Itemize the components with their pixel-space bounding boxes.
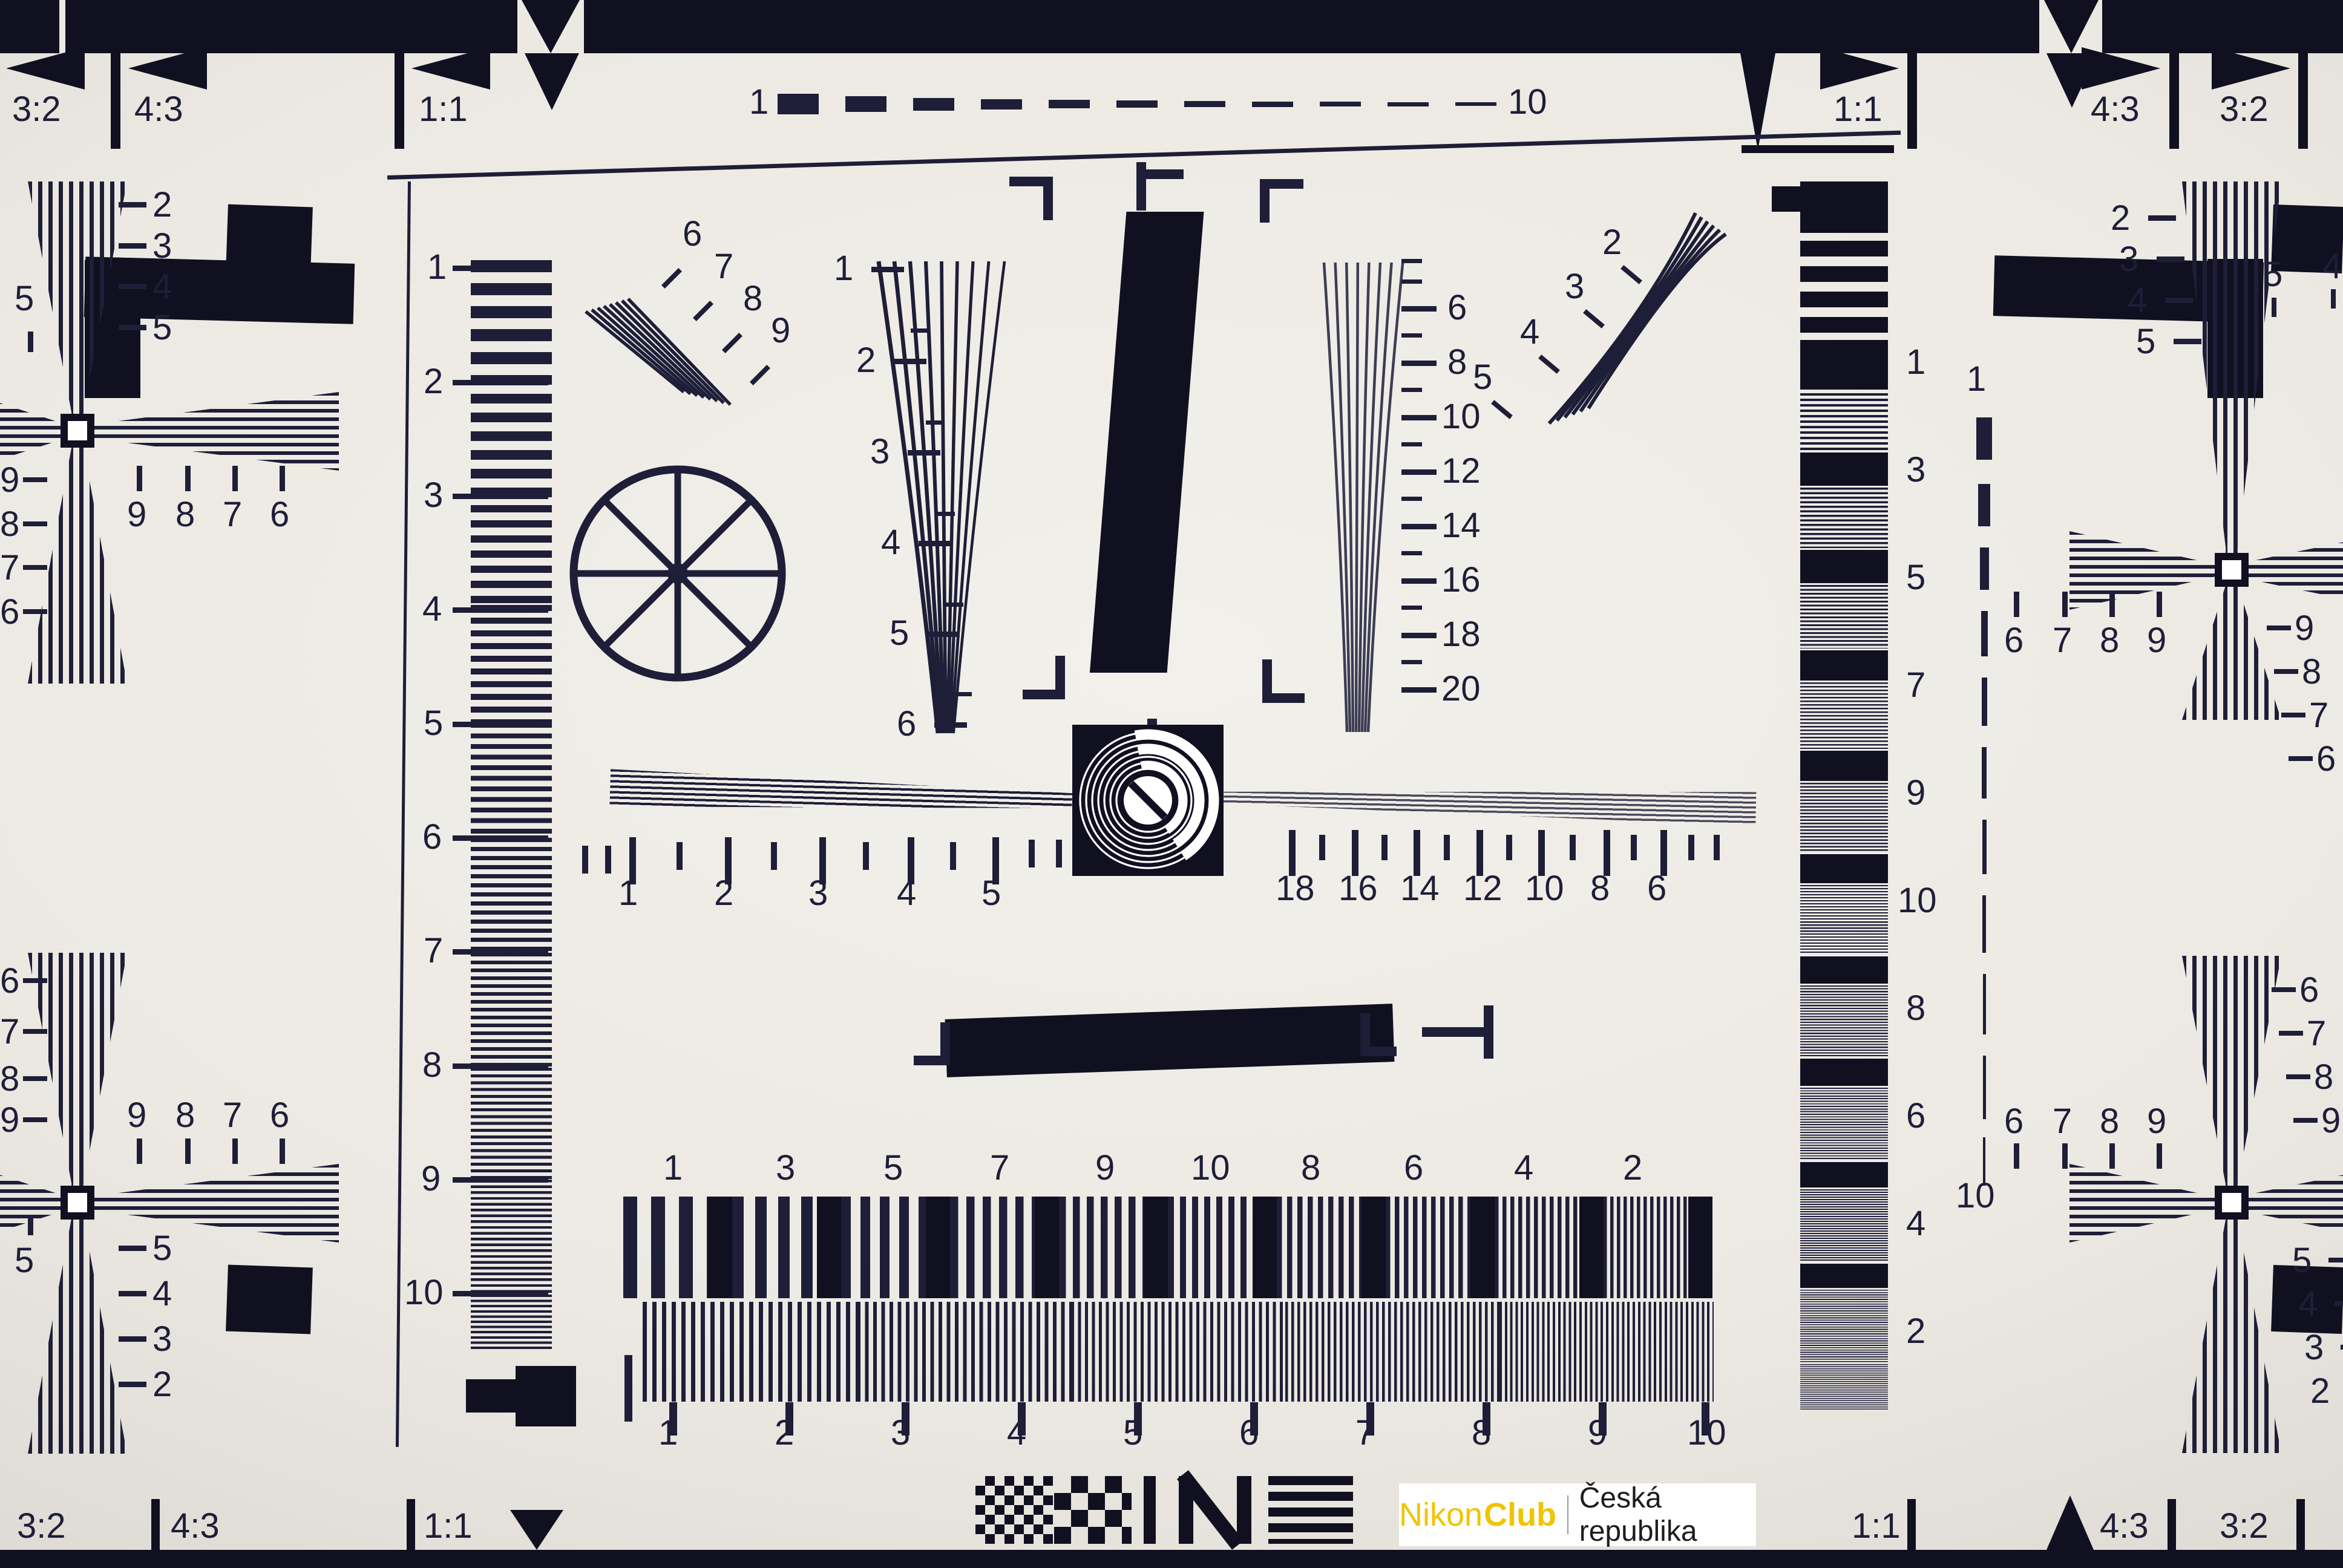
right-col-stripes-0 — [1800, 393, 1888, 451]
top-scale-dash-9 — [1388, 102, 1429, 106]
crt-v-dash-3 — [2174, 339, 2201, 344]
bottom-row2-stripes-4 — [1499, 1302, 1714, 1402]
right-col-stripes-4 — [1800, 783, 1888, 852]
right-wedge-minor-1 — [1401, 279, 1422, 284]
h-left-minor-3 — [771, 842, 777, 870]
label-cross_left_bottom-v_labels-1: 4 — [152, 1276, 172, 1312]
label-left_ruler-labels-7: 8 — [422, 1048, 442, 1083]
clb-edge-dash-0 — [23, 978, 47, 983]
label-bottom_bars-bottom_labels-5: 6 — [1239, 1416, 1259, 1451]
label-cross_right_top-h_labels-2: 8 — [2100, 623, 2119, 658]
left-ruler-tick-5 — [453, 835, 548, 841]
top-scale-dash-5 — [1116, 100, 1158, 108]
bottom-row1-stripes-0 — [623, 1197, 708, 1298]
clb-v-dash-2 — [119, 1336, 146, 1342]
center-wedge-minor-2 — [937, 512, 955, 516]
label-bottom_bars-top_labels-4: 9 — [1095, 1151, 1115, 1186]
right-col-solid-5 — [1800, 452, 1888, 486]
label-center_wedge-labels-2: 3 — [870, 434, 890, 469]
label-cross_left_bottom-h_labels-1: 8 — [175, 1098, 195, 1133]
label-bottom_bars-top_labels-1: 3 — [776, 1151, 795, 1186]
label-left_ruler-labels-9: 10 — [404, 1275, 444, 1310]
label-cross_left_bottom-h_labels-0: 9 — [127, 1098, 146, 1133]
h-right-minor-5 — [1631, 835, 1637, 860]
right-wedge-major-7 — [1401, 687, 1437, 693]
h-right-major-6 — [1660, 830, 1667, 876]
bottom-row2-stripes-2 — [1071, 1302, 1285, 1402]
label-cross_right_top-h_labels-1: 7 — [2053, 623, 2072, 658]
crb-side-dash-3 — [2293, 1118, 2318, 1123]
clt-edge-dash-0 — [23, 477, 47, 482]
bottom-row1-stripes-5 — [1168, 1197, 1253, 1298]
label-right_wedge-labels-2: 10 — [1441, 399, 1481, 434]
label-cross_left_bottom-edge_col-3: 9 — [0, 1103, 19, 1138]
top-scale-dash-6 — [1184, 101, 1225, 107]
h-right-major-4 — [1538, 830, 1545, 876]
label-cross_left_bottom-v_labels-3: 2 — [152, 1367, 172, 1402]
left-ruler-bars-3 — [471, 605, 552, 723]
bottom-row2-stripes-3 — [1285, 1302, 1499, 1402]
right-wedge-minor-8 — [1401, 660, 1422, 664]
dash-column-dash-6 — [1982, 820, 1987, 874]
label-cross_right_top-v_labels-2: 4 — [2128, 283, 2147, 318]
clt-h-tick-1 — [185, 466, 191, 491]
h-right-minor-0 — [1319, 835, 1325, 860]
label-center_wedge-labels-1: 2 — [856, 343, 876, 378]
right-col-stripes-6 — [1800, 985, 1888, 1057]
clt-v-dash-2 — [119, 284, 146, 289]
right-col-solid-12 — [1800, 1162, 1888, 1187]
label-cross_left_top-edge_col-0: 9 — [0, 463, 19, 498]
label-cross_right_bottom-side_col-1: 7 — [2307, 1016, 2326, 1051]
diag-wedge-line-0 — [586, 312, 684, 392]
right-col-solid-7 — [1800, 650, 1888, 681]
label-fan_wedge-labels-1: 3 — [1565, 269, 1584, 304]
top-scale-dash-1 — [845, 96, 886, 112]
label-left_ruler-labels-5: 6 — [422, 820, 442, 855]
label-right_column-labels-7: 6 — [1906, 1099, 1925, 1134]
label-bottom_bars-top_labels-9: 2 — [1623, 1151, 1642, 1186]
bottom-row2-stripes-0 — [643, 1302, 857, 1402]
label-cross_right_top-side_col-0: 9 — [2295, 611, 2314, 646]
dash-column-dash-9 — [1983, 1056, 1986, 1119]
label-cross_right_bottom-v_labels-1: 4 — [2298, 1287, 2318, 1322]
left-ruler-tick-0 — [453, 266, 548, 271]
top-scale-dash-10 — [1455, 102, 1496, 106]
label-cross_left_bottom-edge_col-0: 6 — [0, 964, 19, 999]
clb-v-dash-3 — [119, 1382, 146, 1387]
dash-column-dash-2 — [1980, 547, 1989, 590]
label-cross_right_bottom-side_col-0: 6 — [2299, 973, 2319, 1008]
right-col-solid-0 — [1800, 241, 1888, 256]
label-diag_wedge-labels-2: 8 — [743, 281, 762, 316]
h-right-major-3 — [1476, 830, 1483, 876]
label-bottom_bars-bottom_labels-3: 4 — [1007, 1416, 1026, 1451]
label-cross_left_top-v_labels-0: 2 — [152, 188, 172, 223]
label-right_column-labels-1: 3 — [1906, 452, 1925, 488]
label-h_scale_right-labels-2: 14 — [1400, 871, 1440, 906]
right-wedge-minor-6 — [1401, 551, 1422, 555]
label-bottom_bars-top_labels-6: 8 — [1301, 1151, 1320, 1186]
label-cross_right_bottom-h_labels-3: 9 — [2147, 1104, 2166, 1139]
right-col-solid-10 — [1800, 956, 1888, 984]
label-cross_left_top-h_labels-2: 7 — [223, 497, 242, 532]
label-center_wedge-labels-4: 5 — [890, 616, 909, 651]
bottom-row2-stripes-1 — [857, 1302, 1071, 1402]
label-cross_right_bottom-h_labels-2: 8 — [2100, 1104, 2119, 1139]
label-bottom_bars-top_labels-5: 10 — [1191, 1151, 1230, 1186]
crt-pair-tick-0 — [2272, 298, 2276, 317]
crt-h-tick-1 — [2062, 592, 2068, 617]
center-wedge-major-3 — [919, 541, 951, 546]
h-right-minor-1 — [1381, 835, 1388, 860]
crt-side-dash-2 — [2281, 713, 2305, 717]
label-cross_left_bottom-h_labels-2: 7 — [223, 1098, 242, 1133]
bottom-row1-sep-8 — [1579, 1197, 1604, 1298]
bottom-row1-sep-6 — [1362, 1197, 1386, 1298]
label-left_ruler-labels-8: 9 — [421, 1161, 441, 1197]
label-right_wedge-labels-6: 18 — [1441, 617, 1481, 652]
right-col-solid-9 — [1800, 854, 1888, 883]
center-wedge-minor-0 — [911, 328, 929, 333]
clb-h-tick-1 — [185, 1138, 191, 1164]
right-wedge-minor-7 — [1401, 606, 1422, 610]
right-wedge-minor-0 — [1401, 259, 1422, 263]
clt-h-tick-0 — [137, 466, 142, 491]
h-right-minor-6 — [1688, 835, 1694, 860]
h-left-minor-0 — [582, 846, 588, 874]
label-bottom_bars-bottom_labels-7: 8 — [1472, 1416, 1491, 1451]
crt-side-dash-0 — [2267, 626, 2291, 630]
label-cross_left_bottom-v_labels-0: 5 — [152, 1231, 172, 1266]
label-left_ruler-labels-6: 7 — [424, 933, 443, 969]
label-cross_left_top-h_labels-0: 9 — [127, 497, 146, 532]
h-right-minor-4 — [1570, 835, 1576, 860]
center-wedge-major-5 — [934, 722, 967, 728]
left-ruler-tick-3 — [453, 607, 548, 613]
right-col-stripes-9 — [1800, 1290, 1888, 1362]
right-wedge-major-1 — [1401, 361, 1437, 366]
h-left-minor-1 — [605, 846, 611, 874]
label-cross_right_top-edge_pair-1: 4 — [2322, 249, 2342, 284]
left-ruler-bars-4 — [471, 723, 552, 838]
label-cross_left_top-edge_label: 5 — [15, 281, 34, 316]
dash-column-dash-4 — [1982, 678, 1987, 726]
clt-edge-dash-1 — [23, 521, 47, 526]
bottom-row1-stripes-8 — [1495, 1197, 1579, 1298]
right-wedge-major-3 — [1401, 469, 1437, 475]
top-scale-dash-8 — [1320, 102, 1361, 106]
crb-h-tick-2 — [2109, 1143, 2115, 1169]
clt-edge-dash-2 — [23, 565, 47, 570]
crt-v-dash-1 — [2157, 256, 2184, 262]
center-wedge-major-0 — [871, 267, 904, 272]
crt-pair-tick-1 — [2331, 289, 2336, 309]
h-right-major-5 — [1604, 830, 1610, 876]
crt-h-tick-2 — [2109, 592, 2115, 617]
label-left_ruler-labels-3: 4 — [422, 592, 442, 627]
label-right_wedge-labels-7: 20 — [1441, 671, 1481, 707]
crb-h-tick-3 — [2157, 1143, 2162, 1169]
top-scale-dash-4 — [1049, 100, 1090, 108]
h-left-major-4 — [992, 837, 999, 884]
clt-edge5-tick — [28, 332, 33, 352]
center-wedge-major-4 — [927, 632, 960, 637]
h-right-major-0 — [1289, 830, 1296, 876]
label-left_ruler-labels-0: 1 — [427, 250, 447, 285]
label-cross_left_top-edge_col-2: 7 — [0, 550, 19, 586]
label-center_wedge-labels-5: 6 — [897, 707, 916, 742]
crt-side-dash-1 — [2274, 669, 2298, 674]
label-bottom_bars-top_labels-7: 6 — [1404, 1151, 1423, 1186]
label-cross_right_bottom-h_labels-1: 7 — [2053, 1104, 2072, 1139]
label-center_wedge-labels-3: 4 — [881, 525, 900, 560]
right-wedge-curve-3 — [1356, 263, 1358, 732]
clb-edge-dash-1 — [23, 1029, 47, 1034]
right-col-solid-1 — [1800, 266, 1888, 282]
label-cross_right_top-v_labels-3: 5 — [2136, 324, 2155, 359]
label-h_scale_right-labels-6: 6 — [1647, 871, 1666, 906]
right-wedge-minor-3 — [1401, 388, 1422, 392]
left-ruler-bars-6 — [471, 953, 552, 1068]
right-wedge-major-2 — [1401, 415, 1437, 420]
label-cross_left_top-edge_col-1: 8 — [0, 507, 19, 542]
h-left-minor-5 — [950, 842, 956, 870]
label-bottom_bars-bottom_labels-0: 1 — [658, 1416, 678, 1451]
dash-column-dash-3 — [1981, 611, 1988, 656]
clb-h-tick-3 — [280, 1138, 285, 1164]
left-ruler-bars-7 — [471, 1068, 552, 1180]
fan-wedge-curve-0 — [1549, 213, 1696, 423]
label-bottom_bars-bottom_labels-8: 9 — [1588, 1416, 1607, 1451]
bottom-row1-stripes-1 — [732, 1197, 817, 1298]
right-col-solid-3 — [1800, 317, 1888, 333]
right-col-stripes-2 — [1800, 585, 1888, 648]
label-cross_left_bottom-edge_col-2: 8 — [0, 1062, 19, 1097]
right-col-stripes-5 — [1800, 885, 1888, 955]
h-right-minor-3 — [1506, 835, 1512, 860]
clb-h-tick-0 — [137, 1138, 142, 1164]
label-cross_left_top-h_labels-1: 8 — [175, 497, 195, 532]
clt-h-tick-2 — [232, 466, 238, 491]
h-right-minor-2 — [1444, 835, 1450, 860]
label-cross_right_top-side_col-1: 8 — [2302, 655, 2321, 690]
top-scale-dash-0 — [778, 94, 819, 114]
label-cross_left_bottom-edge_label: 5 — [15, 1243, 34, 1278]
dash-column-dash-7 — [1982, 895, 1986, 953]
label-right_column-labels-6: 8 — [1906, 991, 1925, 1026]
dash-column-dash-1 — [1978, 484, 1990, 526]
bottom-row1-sep-4 — [1144, 1197, 1168, 1298]
left-ruler-bars-1 — [471, 375, 552, 490]
h-right-minor-7 — [1714, 835, 1720, 860]
right-wedge-minor-2 — [1401, 333, 1422, 338]
left-ruler-bars-9 — [471, 1295, 552, 1350]
right-wedge-major-0 — [1401, 306, 1437, 312]
clb-h-tick-2 — [232, 1138, 238, 1164]
label-right_column-labels-3: 7 — [1906, 668, 1925, 703]
right-col-solid-6 — [1800, 550, 1888, 583]
crt-v-dash-0 — [2148, 215, 2176, 221]
label-left_ruler-labels-2: 3 — [424, 478, 443, 513]
label-bottom_bars-bottom_labels-6: 7 — [1355, 1416, 1375, 1451]
label-bottom_bars-bottom_labels-2: 3 — [891, 1416, 910, 1451]
label-diag_wedge-labels-0: 6 — [683, 217, 702, 252]
crt-v-dash-2 — [2165, 298, 2193, 303]
clt-v-dash-0 — [119, 202, 146, 207]
label-dash_column-bottom: 10 — [1956, 1178, 1995, 1214]
bottom-row2-lead-tick — [624, 1355, 632, 1422]
left-ruler-bars-8 — [471, 1180, 552, 1295]
label-h_scale_right-labels-5: 8 — [1590, 871, 1610, 906]
label-cross_left_top-h_labels-3: 6 — [270, 497, 289, 532]
bottom-row1-stripes-4 — [1059, 1197, 1144, 1298]
label-right_column-labels-8: 4 — [1906, 1206, 1925, 1241]
right-col-stripes-3 — [1800, 682, 1888, 749]
right-wedge-major-5 — [1401, 578, 1437, 584]
clt-h-tick-3 — [280, 466, 285, 491]
center-wedge-minor-1 — [926, 420, 944, 425]
bottom-row1-stripes-9 — [1604, 1197, 1688, 1298]
h-left-minor-6 — [1029, 840, 1035, 867]
label-right_column-labels-5: 10 — [1898, 883, 1937, 918]
label-bottom_bars-top_labels-8: 4 — [1514, 1151, 1533, 1186]
label-cross_right_top-v_labels-0: 2 — [2111, 201, 2130, 236]
h-left-minor-4 — [863, 842, 869, 870]
crb-side-dash-1 — [2279, 1031, 2303, 1036]
center-wedge-minor-4 — [954, 692, 972, 696]
label-cross_right_top-side_col-2: 7 — [2309, 698, 2328, 733]
label-cross_right_bottom-v_labels-3: 2 — [2310, 1374, 2330, 1409]
dash-column-dash-5 — [1982, 747, 1987, 799]
label-cross_right_top-side_col-3: 6 — [2316, 742, 2336, 777]
right-col-stripes-7 — [1800, 1088, 1888, 1160]
right-wedge-minor-4 — [1401, 442, 1422, 446]
label-cross_right_bottom-side_col-2: 8 — [2314, 1060, 2333, 1095]
center-wedge-minor-3 — [945, 603, 963, 607]
label-cross_right_bottom-h_labels-0: 6 — [2004, 1104, 2023, 1139]
center-wedge-major-1 — [894, 359, 926, 364]
label-right_column-labels-4: 9 — [1906, 776, 1925, 811]
left-ruler-tick-1 — [453, 380, 548, 385]
label-cross_left_top-v_labels-3: 5 — [152, 310, 172, 345]
clb-edge-dash-2 — [23, 1076, 47, 1081]
label-cross_left_top-edge_col-3: 6 — [0, 595, 19, 630]
bottom-row1-sep-2 — [926, 1197, 950, 1298]
left-ruler-tick-8 — [453, 1177, 548, 1183]
label-left_ruler-labels-4: 5 — [424, 706, 443, 741]
left-ruler-tick-4 — [453, 722, 548, 727]
h-left-major-0 — [629, 837, 636, 884]
label-right_wedge-labels-4: 14 — [1441, 508, 1481, 543]
h-left-minor-2 — [677, 842, 683, 870]
label-diag_wedge-labels-1: 7 — [714, 249, 733, 284]
label-bottom_bars-top_labels-2: 5 — [883, 1151, 903, 1186]
top-scale-dash-3 — [981, 99, 1022, 109]
left-ruler-bars-5 — [471, 838, 552, 953]
label-right_wedge-labels-5: 16 — [1441, 563, 1481, 598]
clb-v-dash-1 — [119, 1291, 146, 1296]
crb-side-dash-2 — [2286, 1074, 2310, 1079]
left-ruler-tick-6 — [453, 949, 548, 955]
right-col-solid-11 — [1800, 1059, 1888, 1086]
diag-wedge-line-1 — [592, 310, 690, 394]
label-h_scale_right-labels-1: 16 — [1339, 871, 1378, 906]
crt-h-tick-0 — [2014, 592, 2019, 617]
bottom-row1-sep-7 — [1470, 1197, 1495, 1298]
bottom-row1-stripes-6 — [1277, 1197, 1362, 1298]
clt-v-dash-3 — [119, 325, 146, 330]
label-diag_wedge-labels-3: 9 — [771, 313, 790, 348]
label-cross_right_top-edge_pair-0: 5 — [2263, 257, 2282, 292]
crb-h-tick-0 — [2014, 1143, 2019, 1169]
label-bottom_bars-bottom_labels-4: 5 — [1123, 1416, 1142, 1451]
wheel-hub — [667, 563, 688, 584]
label-right_wedge-labels-1: 8 — [1447, 345, 1467, 380]
bottom-row1-sep-0 — [708, 1197, 732, 1298]
clt-edge-dash-3 — [23, 609, 47, 614]
h-left-major-3 — [908, 837, 914, 884]
crb-side-dash-0 — [2272, 987, 2296, 992]
bottom-row1-stripes-7 — [1386, 1197, 1470, 1298]
h-right-major-1 — [1352, 830, 1358, 876]
label-right_column-labels-0: 1 — [1906, 345, 1925, 380]
left-ruler-bars-2 — [471, 490, 552, 605]
bottom-row1-lead-bar — [626, 1213, 635, 1298]
bottom-row1-stripes-3 — [950, 1197, 1035, 1298]
center-wedge-major-2 — [908, 450, 940, 456]
label-cross_right_top-h_labels-3: 9 — [2147, 623, 2166, 658]
label-cross_left_bottom-h_labels-3: 6 — [270, 1098, 289, 1133]
right-col-stripes-10 — [1800, 1364, 1888, 1410]
label-h_scale_right-labels-4: 10 — [1525, 871, 1564, 906]
h-left-major-1 — [725, 837, 732, 884]
bottom-row1-sep-3 — [1035, 1197, 1059, 1298]
test-chart-photo: 3:2 4:3 1:1 1:1 4:3 3:2 1 10 3:2 4:3 1:1… — [0, 0, 2343, 1568]
crb-v-dash-0 — [2328, 1258, 2343, 1263]
right-col-solid-2 — [1800, 292, 1888, 307]
right-wedge-major-6 — [1401, 633, 1437, 638]
label-right_column-labels-2: 5 — [1906, 560, 1925, 595]
bottom-row1-sep-5 — [1253, 1197, 1277, 1298]
top-scale-dash-7 — [1252, 102, 1293, 107]
label-fan_wedge-labels-0: 2 — [1602, 225, 1622, 260]
label-cross_right_top-h_labels-0: 6 — [2004, 623, 2023, 658]
label-right_column-labels-9: 2 — [1906, 1314, 1925, 1349]
right-col-solid-4 — [1800, 340, 1888, 390]
right-wedge-minor-5 — [1401, 497, 1422, 501]
bottom-row1-sep-9 — [1688, 1197, 1712, 1298]
label-cross_right_bottom-v_labels-2: 3 — [2304, 1330, 2324, 1365]
label-cross_left_top-v_labels-2: 4 — [152, 269, 172, 304]
right-col-solid-13 — [1800, 1264, 1888, 1288]
label-bottom_bars-top_labels-0: 1 — [663, 1151, 683, 1186]
label-bottom_bars-bottom_labels-9: 10 — [1687, 1416, 1726, 1451]
label-fan_wedge-labels-2: 4 — [1520, 315, 1539, 350]
clb-edge5-tick — [28, 1215, 33, 1235]
label-cross_right_top-v_labels-1: 3 — [2119, 242, 2138, 277]
right-wedge-major-4 — [1401, 524, 1437, 529]
bottom-row1-stripes-2 — [841, 1197, 926, 1298]
clt-v-dash-1 — [119, 243, 146, 249]
label-cross_left_top-v_labels-1: 3 — [152, 229, 172, 264]
left-ruler-tick-2 — [453, 494, 548, 499]
label-left_ruler-labels-1: 2 — [424, 364, 443, 399]
crb-h-tick-1 — [2062, 1143, 2068, 1169]
dash-column-dash-8 — [1983, 974, 1986, 1034]
label-h_scale_right-labels-0: 18 — [1276, 871, 1315, 906]
diag-wedge-line-5 — [616, 302, 717, 401]
